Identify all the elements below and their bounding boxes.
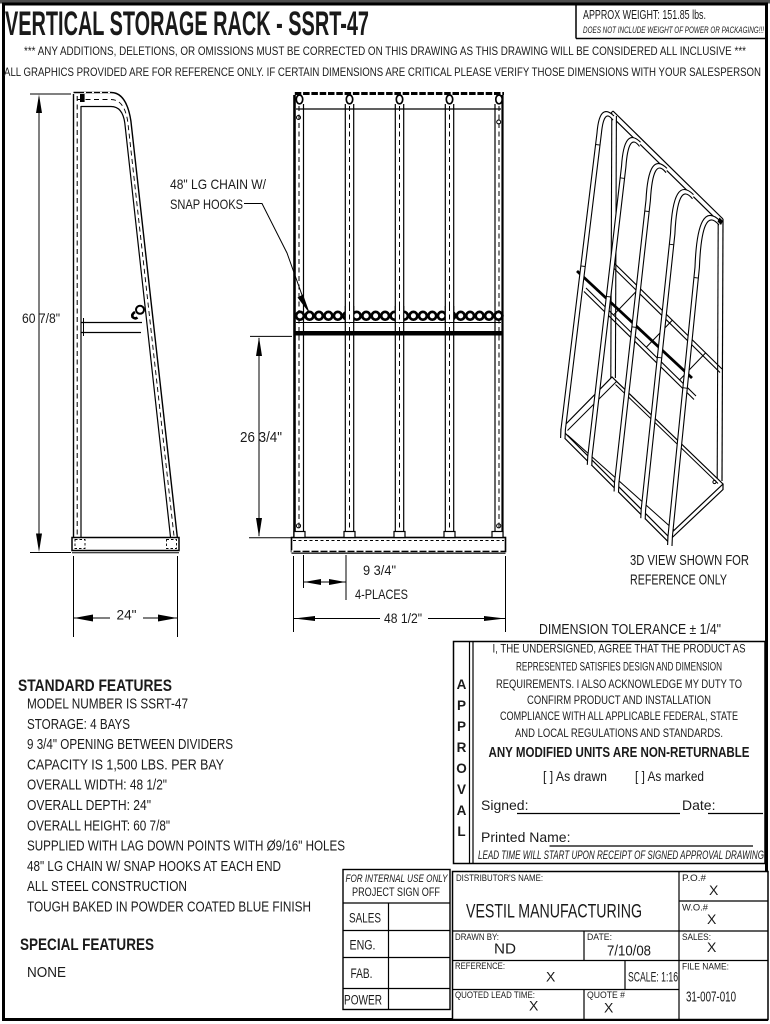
svg-text:REQUIREMENTS. I ALSO ACKNOWLE: REQUIREMENTS. I ALSO ACKNOWLEDGE MY DUTY… — [496, 677, 742, 691]
svg-text:26 3/4": 26 3/4" — [240, 430, 282, 446]
svg-text:L: L — [457, 824, 465, 839]
svg-text:Date:: Date: — [682, 797, 715, 813]
svg-text:SALES: SALES — [349, 911, 381, 926]
svg-text:4-PLACES: 4-PLACES — [355, 586, 408, 602]
svg-text:NONE: NONE — [27, 965, 66, 981]
svg-text:CAPACITY IS 1,500 LBS. PER BAY: CAPACITY IS 1,500 LBS. PER BAY — [27, 757, 224, 773]
svg-text:STORAGE: 4 BAYS: STORAGE: 4 BAYS — [27, 717, 130, 733]
svg-text:48" LG CHAIN W/: 48" LG CHAIN W/ — [170, 176, 266, 192]
svg-text:P.O.#: P.O.# — [682, 873, 707, 884]
svg-text:LEAD TIME WILL START UPON RECE: LEAD TIME WILL START UPON RECEIPT OF SIG… — [478, 848, 764, 862]
svg-text:31-007-010: 31-007-010 — [686, 990, 736, 1006]
svg-text:A: A — [457, 803, 467, 818]
svg-text:REFERENCE ONLY: REFERENCE ONLY — [630, 572, 727, 589]
svg-text:DOES NOT INCLUDE WEIGHT OF POW: DOES NOT INCLUDE WEIGHT OF POWER OR PACK… — [583, 25, 764, 35]
svg-text:R: R — [457, 740, 467, 755]
svg-text:SCALE: 1:16: SCALE: 1:16 — [628, 969, 678, 985]
svg-text:X: X — [709, 882, 719, 898]
svg-text:POWER: POWER — [344, 993, 382, 1008]
svg-text:SUPPLIED WITH LAG DOWN POINTS: SUPPLIED WITH LAG DOWN POINTS WITH Ø9/16… — [27, 839, 345, 855]
svg-text:SPECIAL FEATURES: SPECIAL FEATURES — [20, 936, 154, 954]
svg-text:PROJECT SIGN OFF: PROJECT SIGN OFF — [352, 885, 440, 899]
svg-text:OVERALL DEPTH: 24": OVERALL DEPTH: 24" — [27, 798, 151, 814]
svg-text:ANY MODIFIED UNITS ARE NON-RET: ANY MODIFIED UNITS ARE NON-RETURNABLE — [489, 745, 750, 761]
svg-text:REFERENCE:: REFERENCE: — [455, 961, 505, 972]
svg-text:*** ANY ADDITIONS, DELETIONS,: *** ANY ADDITIONS, DELETIONS, OR OMISSIO… — [24, 44, 746, 58]
svg-text:TOUGH BAKED IN POWDER COATED B: TOUGH BAKED IN POWDER COATED BLUE FINISH — [27, 900, 311, 916]
svg-text:SNAP HOOKS: SNAP HOOKS — [170, 196, 243, 212]
svg-text:REPRESENTED SATISFIES DESIGN A: REPRESENTED SATISFIES DESIGN AND DIMENSI… — [516, 659, 722, 673]
svg-text:VERTICAL STORAGE RACK - SSRT-4: VERTICAL STORAGE RACK - SSRT-47 — [5, 5, 369, 43]
svg-text:W.O.#: W.O.# — [682, 903, 709, 914]
svg-text:STANDARD FEATURES: STANDARD FEATURES — [18, 677, 172, 695]
svg-text:FOR INTERNAL USE ONLY: FOR INTERNAL USE ONLY — [346, 873, 448, 885]
svg-text:V: V — [457, 782, 466, 797]
svg-text:O: O — [456, 761, 467, 776]
svg-text:9 3/4" OPENING BETWEEN DIVIDER: 9 3/4" OPENING BETWEEN DIVIDERS — [27, 737, 233, 753]
svg-text:X: X — [707, 939, 717, 955]
svg-text:DATE:: DATE: — [587, 932, 612, 943]
svg-text:DRAWN BY:: DRAWN BY: — [455, 932, 499, 943]
svg-text:48 1/2": 48 1/2" — [384, 610, 422, 626]
svg-text:P: P — [457, 698, 466, 713]
svg-text:APPROX WEIGHT: 151.85 lbs.: APPROX WEIGHT: 151.85 lbs. — [583, 8, 706, 22]
svg-text:VESTIL MANUFACTURING: VESTIL MANUFACTURING — [466, 901, 642, 923]
svg-text:FILE NAME:: FILE NAME: — [682, 962, 729, 973]
svg-text:[ ] As marked: [ ] As marked — [635, 769, 704, 784]
svg-text:Printed Name:: Printed Name: — [481, 829, 570, 845]
svg-text:QUOTED LEAD TIME:: QUOTED LEAD TIME: — [455, 990, 535, 1001]
svg-text:DISTRIBUTOR'S NAME:: DISTRIBUTOR'S NAME: — [456, 873, 543, 884]
svg-text:DIMENSION TOLERANCE ± 1/4": DIMENSION TOLERANCE ± 1/4" — [539, 622, 721, 638]
svg-text:X: X — [707, 911, 717, 927]
svg-text:X: X — [529, 998, 539, 1014]
svg-text:24": 24" — [117, 607, 137, 623]
svg-text:AND LOCAL REGULATIONS AND STAN: AND LOCAL REGULATIONS AND STANDARDS. — [515, 726, 723, 740]
svg-text:MODEL NUMBER IS SSRT-47: MODEL NUMBER IS SSRT-47 — [27, 697, 188, 713]
svg-text:COMPLIANCE WITH ALL APPLICABLE: COMPLIANCE WITH ALL APPLICABLE FEDERAL, … — [500, 709, 738, 723]
svg-text:ENG.: ENG. — [350, 938, 376, 953]
svg-text:3D VIEW SHOWN FOR: 3D VIEW SHOWN FOR — [630, 552, 749, 569]
svg-text:X: X — [604, 1000, 614, 1016]
svg-text:FAB.: FAB. — [351, 966, 373, 981]
svg-text:P: P — [457, 719, 466, 734]
svg-text:ALL GRAPHICS PROVIDED ARE FOR: ALL GRAPHICS PROVIDED ARE FOR REFERENCE … — [4, 65, 761, 79]
svg-text:48" LG CHAIN W/ SNAP HOOKS AT: 48" LG CHAIN W/ SNAP HOOKS AT EACH END — [27, 859, 281, 875]
svg-text:CONFIRM PRODUCT AND INSTALLATI: CONFIRM PRODUCT AND INSTALLATION — [527, 693, 711, 707]
svg-text:ALL STEEL CONSTRUCTION: ALL STEEL CONSTRUCTION — [27, 879, 187, 895]
svg-text:OVERALL WIDTH: 48 1/2": OVERALL WIDTH: 48 1/2" — [27, 778, 167, 794]
svg-text:7/10/08: 7/10/08 — [607, 943, 651, 960]
svg-text:I, THE UNDERSIGNED, AGREE THAT: I, THE UNDERSIGNED, AGREE THAT THE PRODU… — [493, 641, 746, 655]
svg-text:A: A — [457, 677, 467, 692]
svg-text:X: X — [546, 969, 556, 985]
svg-text:Signed:: Signed: — [481, 797, 528, 813]
svg-text:[ ] As drawn: [ ] As drawn — [543, 769, 607, 784]
svg-text:ND: ND — [494, 941, 516, 958]
svg-text:60 7/8": 60 7/8" — [22, 310, 60, 326]
svg-text:9 3/4": 9 3/4" — [363, 562, 396, 578]
svg-text:OVERALL HEIGHT: 60 7/8": OVERALL HEIGHT: 60 7/8" — [27, 818, 170, 834]
